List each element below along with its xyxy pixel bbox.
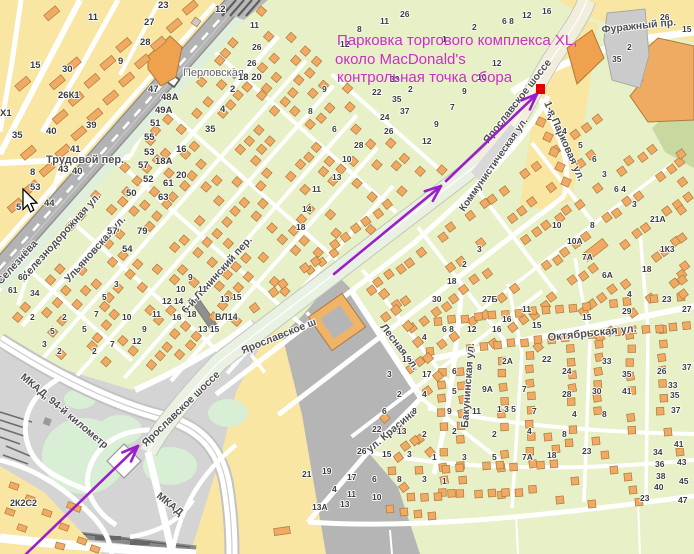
svg-text:34: 34 — [30, 288, 40, 298]
svg-text:2: 2 — [92, 346, 97, 356]
svg-text:18: 18 — [642, 264, 652, 274]
svg-text:9: 9 — [188, 272, 193, 282]
svg-text:11: 11 — [522, 304, 531, 314]
svg-text:23: 23 — [158, 0, 169, 11]
svg-text:13 15: 13 15 — [198, 324, 220, 334]
svg-text:40: 40 — [654, 482, 664, 492]
svg-text:10: 10 — [342, 154, 352, 164]
svg-text:7: 7 — [94, 309, 99, 319]
svg-text:12: 12 — [492, 58, 502, 68]
svg-text:около MacDonald's: около MacDonald's — [335, 51, 466, 68]
svg-text:20: 20 — [176, 170, 187, 181]
svg-text:40: 40 — [46, 126, 57, 137]
svg-text:3: 3 — [462, 452, 467, 462]
svg-text:35: 35 — [12, 130, 23, 141]
svg-text:63: 63 — [158, 192, 169, 203]
svg-text:10: 10 — [552, 220, 562, 230]
svg-text:16: 16 — [176, 144, 187, 155]
svg-text:12: 12 — [522, 10, 532, 20]
svg-text:35: 35 — [612, 54, 622, 64]
svg-text:21А: 21А — [650, 214, 666, 224]
svg-text:53: 53 — [30, 182, 41, 193]
svg-text:9: 9 — [118, 56, 123, 67]
svg-text:38: 38 — [656, 471, 666, 481]
svg-text:15: 15 — [582, 312, 592, 322]
svg-text:контрольная точка сбора: контрольная точка сбора — [337, 69, 513, 86]
svg-text:23: 23 — [582, 446, 592, 456]
svg-text:3: 3 — [387, 369, 392, 379]
svg-text:27: 27 — [682, 304, 692, 314]
svg-text:3: 3 — [422, 474, 427, 484]
svg-text:21: 21 — [302, 469, 312, 479]
svg-text:61: 61 — [163, 178, 174, 189]
svg-text:6А: 6А — [602, 270, 613, 280]
svg-text:1: 1 — [442, 476, 447, 486]
svg-text:49А: 49А — [155, 105, 173, 116]
svg-text:24: 24 — [562, 366, 572, 376]
svg-text:22: 22 — [372, 87, 382, 97]
svg-text:15: 15 — [30, 60, 41, 71]
svg-text:3: 3 — [114, 279, 119, 289]
svg-text:40: 40 — [72, 166, 83, 177]
svg-text:14: 14 — [302, 204, 312, 214]
svg-text:18 20: 18 20 — [238, 72, 262, 83]
svg-text:13: 13 — [332, 172, 342, 182]
svg-text:3: 3 — [602, 169, 607, 179]
svg-text:47: 47 — [678, 495, 688, 505]
svg-text:28: 28 — [562, 389, 572, 399]
svg-text:9: 9 — [322, 84, 327, 94]
svg-text:4: 4 — [220, 104, 226, 115]
svg-text:26: 26 — [400, 9, 410, 19]
svg-text:6: 6 — [592, 154, 597, 164]
svg-text:3: 3 — [42, 339, 47, 349]
svg-text:41: 41 — [70, 144, 81, 155]
svg-text:6: 6 — [332, 124, 337, 134]
svg-text:35: 35 — [392, 94, 402, 104]
svg-text:11: 11 — [88, 12, 99, 23]
svg-text:2: 2 — [57, 346, 62, 356]
svg-text:2: 2 — [397, 389, 402, 399]
svg-text:4: 4 — [627, 289, 632, 299]
svg-text:6 4: 6 4 — [614, 184, 626, 194]
svg-text:9: 9 — [447, 406, 452, 416]
svg-text:18: 18 — [187, 309, 197, 319]
svg-text:12: 12 — [132, 336, 142, 346]
svg-text:61: 61 — [8, 285, 18, 295]
svg-text:26: 26 — [657, 366, 667, 376]
svg-text:26: 26 — [247, 58, 257, 68]
svg-text:9: 9 — [142, 324, 147, 334]
svg-text:1: 1 — [432, 452, 437, 462]
svg-text:15: 15 — [232, 292, 242, 302]
svg-text:11: 11 — [198, 284, 207, 294]
svg-text:22: 22 — [372, 424, 382, 434]
svg-text:47: 47 — [148, 84, 159, 95]
svg-text:11: 11 — [347, 489, 356, 499]
svg-text:6 8: 6 8 — [442, 324, 454, 334]
svg-text:13: 13 — [397, 426, 407, 436]
svg-text:43: 43 — [677, 457, 687, 467]
svg-text:35: 35 — [670, 390, 680, 400]
svg-text:11: 11 — [250, 20, 259, 30]
svg-text:33: 33 — [668, 380, 678, 390]
svg-text:54: 54 — [122, 244, 133, 255]
svg-text:ВЛ14: ВЛ14 — [215, 312, 238, 322]
svg-text:55: 55 — [144, 132, 155, 143]
svg-text:28: 28 — [354, 140, 364, 150]
svg-text:4: 4 — [572, 409, 577, 419]
svg-text:5: 5 — [452, 386, 457, 396]
svg-text:36: 36 — [655, 459, 665, 469]
svg-text:13: 13 — [220, 294, 230, 304]
svg-text:5: 5 — [492, 452, 497, 462]
svg-text:7А: 7А — [582, 252, 593, 262]
svg-text:4: 4 — [422, 332, 427, 342]
svg-text:26: 26 — [252, 42, 262, 52]
svg-text:6: 6 — [372, 474, 377, 484]
svg-text:43: 43 — [58, 164, 69, 175]
svg-text:2: 2 — [547, 112, 552, 122]
svg-text:1 3 5: 1 3 5 — [497, 404, 516, 414]
svg-text:57: 57 — [138, 160, 149, 171]
svg-text:8: 8 — [397, 474, 402, 484]
svg-text:60: 60 — [18, 272, 28, 282]
svg-text:11: 11 — [152, 309, 161, 319]
svg-text:7А: 7А — [522, 452, 533, 462]
svg-text:26: 26 — [357, 446, 367, 456]
svg-text:2: 2 — [422, 429, 427, 439]
svg-text:2: 2 — [30, 312, 35, 322]
svg-text:23: 23 — [662, 294, 672, 304]
svg-text:2: 2 — [472, 22, 477, 32]
svg-text:11: 11 — [312, 184, 321, 194]
svg-text:Парковка торгового комплекса X: Парковка торгового комплекса XL, — [337, 32, 577, 49]
svg-text:8: 8 — [308, 106, 313, 116]
svg-text:16: 16 — [502, 314, 512, 324]
svg-text:57: 57 — [107, 226, 118, 237]
svg-text:Х1: Х1 — [0, 108, 12, 119]
svg-text:8: 8 — [477, 362, 482, 372]
svg-text:15: 15 — [682, 24, 692, 34]
svg-text:53: 53 — [144, 147, 155, 158]
svg-text:15: 15 — [402, 354, 412, 364]
svg-text:3: 3 — [477, 244, 482, 254]
svg-text:4: 4 — [332, 484, 337, 494]
svg-text:19: 19 — [322, 466, 332, 476]
svg-text:5: 5 — [82, 324, 87, 334]
svg-text:52: 52 — [143, 174, 154, 185]
svg-text:41: 41 — [674, 439, 684, 449]
svg-text:4: 4 — [422, 389, 427, 399]
svg-text:26: 26 — [384, 126, 394, 136]
svg-text:2: 2 — [230, 84, 235, 95]
svg-text:26: 26 — [660, 12, 670, 22]
svg-text:5: 5 — [578, 140, 583, 150]
svg-text:10А: 10А — [567, 236, 583, 246]
svg-text:6 8: 6 8 — [502, 16, 514, 26]
svg-text:12: 12 — [422, 136, 432, 146]
svg-text:13: 13 — [340, 499, 350, 509]
svg-text:7: 7 — [522, 384, 527, 394]
svg-text:29: 29 — [622, 306, 632, 316]
svg-text:15: 15 — [382, 449, 392, 459]
svg-text:Перловская: Перловская — [183, 67, 244, 79]
svg-text:3: 3 — [632, 199, 637, 209]
svg-text:7: 7 — [110, 339, 115, 349]
svg-text:5: 5 — [102, 292, 107, 302]
svg-text:16: 16 — [492, 324, 502, 334]
svg-text:37: 37 — [400, 106, 410, 116]
svg-text:16: 16 — [542, 6, 552, 16]
svg-text:3: 3 — [407, 449, 412, 459]
svg-text:9: 9 — [462, 86, 467, 96]
svg-text:2: 2 — [627, 42, 632, 52]
svg-text:8: 8 — [590, 220, 595, 230]
svg-text:11: 11 — [380, 16, 389, 26]
svg-text:27Б: 27Б — [482, 294, 498, 304]
svg-text:27: 27 — [144, 17, 155, 28]
svg-text:6: 6 — [382, 406, 387, 416]
svg-text:33: 33 — [602, 356, 612, 366]
svg-text:12: 12 — [467, 324, 477, 334]
svg-text:35: 35 — [205, 124, 216, 135]
svg-text:13А: 13А — [312, 502, 328, 512]
svg-text:12: 12 — [215, 4, 226, 15]
svg-text:12 14: 12 14 — [162, 296, 184, 306]
svg-text:7: 7 — [532, 406, 537, 416]
svg-text:41: 41 — [622, 386, 632, 396]
svg-text:35: 35 — [622, 369, 632, 379]
svg-text:16: 16 — [172, 312, 182, 322]
svg-text:23: 23 — [640, 493, 650, 503]
svg-text:6: 6 — [452, 366, 457, 376]
svg-text:9А: 9А — [482, 384, 493, 394]
svg-text:7: 7 — [450, 102, 455, 112]
svg-text:51: 51 — [150, 118, 161, 129]
svg-text:1К3: 1К3 — [660, 244, 675, 254]
svg-text:18: 18 — [447, 276, 457, 286]
svg-text:22: 22 — [542, 354, 552, 364]
svg-text:2: 2 — [492, 429, 497, 439]
svg-text:37: 37 — [671, 405, 681, 415]
svg-text:18: 18 — [547, 450, 557, 460]
svg-text:8: 8 — [562, 429, 567, 439]
svg-text:17: 17 — [422, 369, 432, 379]
svg-text:11: 11 — [472, 406, 481, 416]
svg-text:44: 44 — [44, 198, 55, 209]
svg-text:5: 5 — [50, 326, 55, 336]
svg-text:17: 17 — [347, 472, 357, 482]
svg-text:8: 8 — [602, 409, 607, 419]
svg-text:2: 2 — [452, 426, 457, 436]
svg-text:34: 34 — [653, 447, 663, 457]
svg-text:10: 10 — [372, 492, 382, 502]
svg-text:2А: 2А — [502, 356, 513, 366]
svg-text:30: 30 — [592, 386, 602, 396]
svg-text:2К2С2: 2К2С2 — [10, 498, 37, 508]
svg-text:18А: 18А — [155, 156, 173, 167]
svg-text:45: 45 — [679, 476, 689, 486]
svg-text:28: 28 — [140, 37, 151, 48]
svg-text:39: 39 — [86, 120, 97, 131]
svg-text:8: 8 — [412, 406, 417, 416]
svg-text:24: 24 — [380, 112, 390, 122]
svg-text:4: 4 — [562, 126, 567, 136]
svg-text:4: 4 — [527, 426, 532, 436]
svg-text:10: 10 — [176, 284, 186, 294]
svg-text:15: 15 — [532, 320, 542, 330]
svg-text:2: 2 — [62, 312, 67, 322]
svg-text:10: 10 — [122, 312, 132, 322]
svg-text:2: 2 — [462, 259, 467, 269]
svg-text:8: 8 — [30, 167, 35, 178]
svg-text:9: 9 — [434, 119, 439, 129]
svg-text:50: 50 — [126, 188, 137, 199]
svg-text:26К1: 26К1 — [58, 90, 80, 101]
svg-text:30: 30 — [62, 64, 73, 75]
svg-text:18: 18 — [296, 222, 306, 232]
svg-text:37: 37 — [682, 362, 692, 372]
svg-text:48А: 48А — [161, 92, 179, 103]
svg-text:79: 79 — [137, 226, 148, 237]
svg-text:30: 30 — [432, 294, 442, 304]
